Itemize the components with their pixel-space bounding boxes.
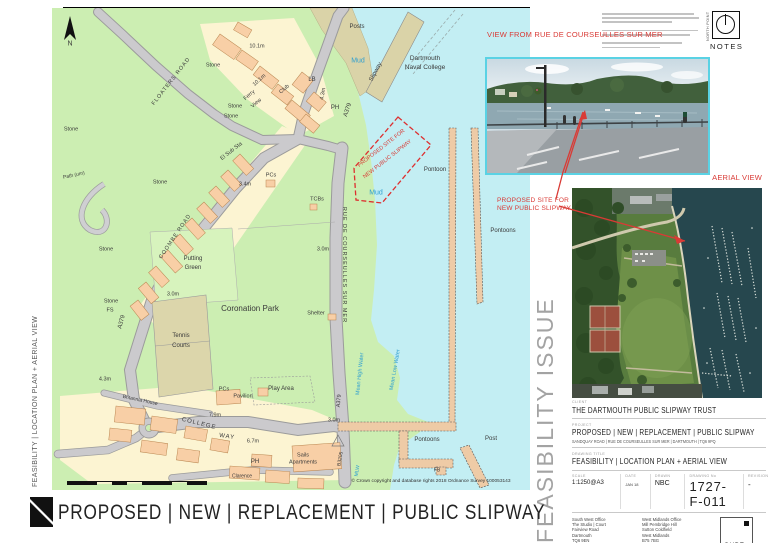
map-label: Slipway xyxy=(368,61,383,82)
map-label: Post xyxy=(485,436,497,442)
map-label: Mud xyxy=(369,190,383,197)
map-label: PCs xyxy=(266,173,276,179)
map-label: PH xyxy=(331,105,339,111)
notes-title: NOTES xyxy=(710,42,740,51)
drawn-header: DRAWN xyxy=(655,474,681,478)
os-copyright: © Crown copyright and database rights 20… xyxy=(332,479,530,484)
map-label: Dartmouth xyxy=(410,56,440,63)
map-label: Pontoon xyxy=(424,167,446,173)
map-label: Naval College xyxy=(405,65,445,72)
office-westmidlands: West Midlands OfficeMill Pembridge HillS… xyxy=(642,517,712,543)
map-label: Mean High Water xyxy=(356,353,366,396)
qube-logo: QUBE xyxy=(720,517,753,543)
map-labels: NPostsMudDartmouthNaval CollegeSlipwayA3… xyxy=(52,8,530,490)
map-label: Pontoons xyxy=(414,437,439,443)
map-label: 3.4m xyxy=(239,182,251,188)
drawing-title-label: DRAWING TITLE xyxy=(572,452,766,456)
map-label: 3.0m xyxy=(317,247,329,253)
office-southwest: South West OfficeThe Studio | CourtFairv… xyxy=(572,517,642,543)
map-label: A379 xyxy=(117,314,126,329)
address-line: TQ6 9EN xyxy=(572,538,642,543)
map-label: COLLEGE xyxy=(181,417,217,431)
street-view-photo xyxy=(485,57,710,175)
map-label: Stone xyxy=(99,247,113,253)
map-label: Stone xyxy=(206,63,220,69)
map-label: El Sub Sta xyxy=(220,142,244,162)
map-label: RUE DE COURSEULLES SUR MER xyxy=(340,207,346,323)
project-address: SANDQUAY ROAD | RUE DE COURSEULLES SUR M… xyxy=(572,439,747,444)
map-label: Pavilion xyxy=(233,394,252,400)
map-label: Sails xyxy=(297,453,309,459)
date-value: JAN 18 xyxy=(625,482,645,487)
office-addresses: South West OfficeThe Studio | CourtFairv… xyxy=(572,517,766,543)
side-strip-label: FEASIBILITY | LOCATION PLAN + AERIAL VIE… xyxy=(32,311,39,487)
map-label: Pontoons xyxy=(490,228,515,234)
map-label: WAY xyxy=(219,433,236,441)
drawing-no-value: 1727-F-011 xyxy=(689,479,739,509)
map-label: Apartments xyxy=(289,460,317,466)
qube-logo-square xyxy=(744,521,749,526)
map-label: A379 xyxy=(343,102,353,117)
map-label: Play Area xyxy=(268,386,294,392)
map-label: Shelter xyxy=(307,311,324,317)
project-label: PROJECT xyxy=(572,423,766,427)
map-label: PCs xyxy=(219,387,229,393)
map-label: Britannia House xyxy=(122,395,158,407)
location-plan-map: NPostsMudDartmouthNaval CollegeSlipwayA3… xyxy=(52,8,530,490)
map-label: FLOATERS ROAD xyxy=(152,57,193,107)
map-label: N xyxy=(67,41,72,48)
map-label: Club xyxy=(279,84,291,95)
map-label: Clarence xyxy=(232,475,252,480)
map-label: Tennis xyxy=(172,333,189,339)
sheet-bottom-title: PROPOSED | NEW | REPLACEMENT | PUBLIC SL… xyxy=(58,501,545,525)
meta-row: SCALE 1:1250@A3 DATE JAN 18 DRAWN NBC DR… xyxy=(572,474,766,509)
drawing-sheet: NPostsMudDartmouthNaval CollegeSlipwayA3… xyxy=(0,0,768,543)
map-label: 3.0m xyxy=(167,292,179,298)
map-label: FB xyxy=(434,469,440,474)
map-label: TCBs xyxy=(310,197,324,203)
map-label: LB xyxy=(308,77,315,83)
scale-header: SCALE xyxy=(572,474,616,478)
map-label: 4.3m xyxy=(99,377,111,383)
drawing-title: FEASIBILITY | LOCATION PLAN + AERIAL VIE… xyxy=(572,457,731,466)
map-label: 10.1m xyxy=(252,74,267,88)
map-label: Stone xyxy=(104,299,118,305)
map-label: 6.7m xyxy=(247,439,259,445)
revision-value: - xyxy=(748,480,762,489)
map-label: Coronation Park xyxy=(221,305,279,313)
map-label: Stone xyxy=(224,114,238,120)
north-point-label: NORTH POINT xyxy=(706,11,710,41)
map-label: Posts xyxy=(349,24,364,30)
map-label: A379 xyxy=(337,394,344,407)
map-label: Courts xyxy=(172,343,190,349)
north-point-icon xyxy=(712,11,740,39)
map-label: Stone xyxy=(153,180,167,186)
map-label: 10.1m xyxy=(249,44,264,50)
map-label: 3.0m xyxy=(328,418,340,424)
map-label: 4.3m xyxy=(320,87,328,100)
map-label: COOMBE ROAD xyxy=(159,214,193,261)
map-label: Mud xyxy=(351,58,365,65)
aerial-view-photo xyxy=(572,188,762,398)
revision-header: REVISION xyxy=(748,474,762,478)
map-label: FS xyxy=(106,308,113,314)
date-header: DATE xyxy=(625,474,645,478)
map-label: MLW xyxy=(355,465,362,477)
project-name: PROPOSED | NEW | REPLACEMENT | PUBLIC SL… xyxy=(572,428,731,437)
drawn-value: NBC xyxy=(655,480,681,487)
map-label: Mean Low Water xyxy=(390,349,403,391)
address-line: B75 7BG xyxy=(642,538,712,543)
drawing-no-header: DRAWING No xyxy=(689,474,739,478)
client-label: CLIENT xyxy=(572,400,766,404)
scale-value: 1:1250@A3 xyxy=(572,480,616,486)
map-label: Stone xyxy=(64,127,78,133)
map-label: 7.9m xyxy=(209,413,221,419)
sheet-corner-logo xyxy=(30,497,53,527)
map-label: B3205 xyxy=(337,451,344,466)
map-label: Path (um) xyxy=(63,171,86,180)
map-label: Green xyxy=(185,265,202,271)
map-label: Putting xyxy=(184,256,203,262)
client-name: THE DARTMOUTH PUBLIC SLIPWAY TRUST xyxy=(572,406,731,415)
map-label: PH xyxy=(251,459,259,465)
map-label: View xyxy=(251,98,264,110)
map-label: Stone xyxy=(228,104,242,110)
title-block: CLIENT THE DARTMOUTH PUBLIC SLIPWAY TRUS… xyxy=(572,400,766,543)
